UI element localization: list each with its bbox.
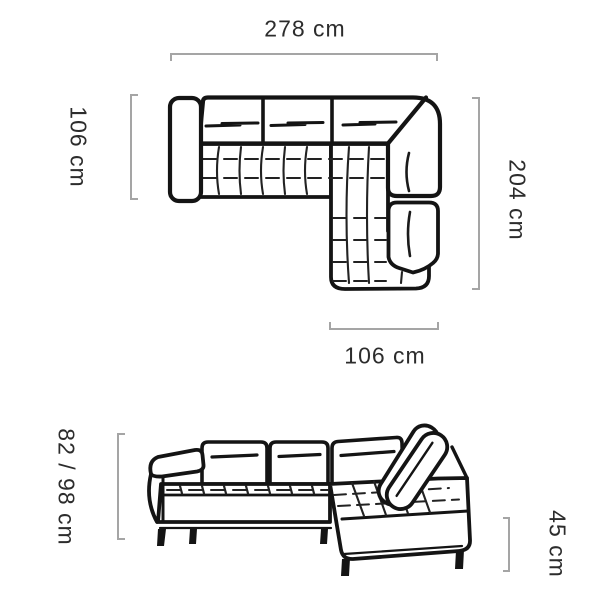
corner-side-seam [452, 447, 467, 478]
dim-label-seat-height: 45 cm [544, 510, 571, 578]
sofa-front-view-drawing [140, 415, 490, 590]
sofa-top-view-drawing [150, 75, 470, 305]
dim-label-total-width: 278 cm [264, 16, 345, 43]
dim-label-backrest-height: 82 / 98 cm [53, 428, 80, 545]
dim-bracket-backrest-height [117, 433, 125, 540]
right-armrest-lower [389, 203, 439, 273]
back-cushion-2 [270, 442, 328, 484]
dim-bracket-left-depth [130, 94, 138, 200]
left-armrest [170, 98, 201, 201]
dim-label-right-length: 204 cm [504, 159, 531, 240]
dim-label-left-depth: 106 cm [65, 106, 92, 187]
dim-bracket-total-width [170, 53, 438, 61]
cushion-stitches [206, 122, 396, 126]
back-cushion-1 [202, 442, 267, 484]
dim-bracket-right-length [472, 97, 480, 290]
front-legs [157, 529, 328, 546]
left-armrest-flap [150, 450, 203, 477]
dim-label-chaise-width: 106 cm [344, 343, 425, 370]
sofa-dimensions-diagram: 278 cm 106 cm 204 cm 106 cm [0, 0, 600, 600]
dim-bracket-chaise-width [329, 322, 439, 330]
left-armrest-front [149, 474, 157, 522]
dim-bracket-seat-height [503, 517, 510, 572]
